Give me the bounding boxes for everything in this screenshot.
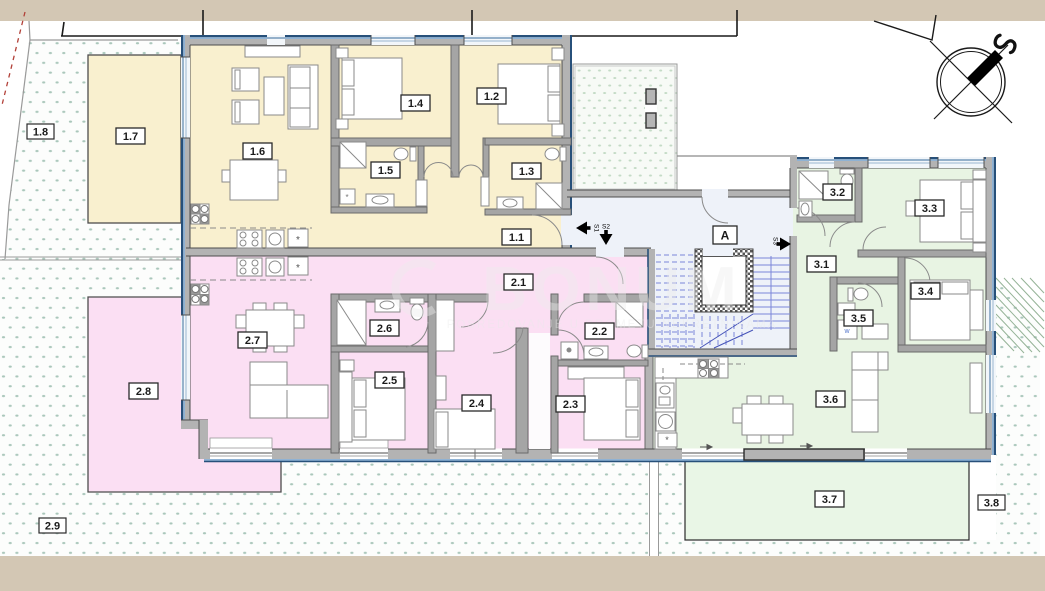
svg-text:*: *: [345, 193, 348, 202]
svg-text:*: *: [296, 235, 300, 246]
svg-text:S2: S2: [602, 224, 610, 231]
svg-text:*: *: [296, 263, 300, 274]
svg-text:3.4: 3.4: [918, 286, 934, 298]
svg-text:1.1: 1.1: [509, 232, 524, 244]
svg-text:3.8: 3.8: [984, 498, 999, 510]
svg-text:1.2: 1.2: [484, 91, 499, 103]
svg-text:3.1: 3.1: [814, 259, 829, 271]
svg-text:3.5: 3.5: [851, 313, 866, 325]
svg-text:2.6: 2.6: [377, 323, 392, 335]
svg-text:2.3: 2.3: [563, 399, 578, 411]
svg-text:1.8: 1.8: [33, 127, 48, 139]
svg-text:1.5: 1.5: [378, 165, 393, 177]
svg-text:2.8: 2.8: [136, 386, 151, 398]
svg-text:1.6: 1.6: [250, 146, 265, 158]
svg-text:A: A: [721, 229, 730, 243]
svg-text:3.7: 3.7: [822, 494, 837, 506]
svg-text:2.1: 2.1: [511, 277, 526, 289]
svg-text:S1: S1: [593, 224, 600, 232]
svg-text:1.4: 1.4: [408, 98, 424, 110]
svg-text:*: *: [665, 435, 669, 445]
svg-text:3.2: 3.2: [830, 187, 845, 199]
svg-text:w: w: [843, 328, 850, 335]
svg-text:2.7: 2.7: [245, 335, 260, 347]
svg-text:2.4: 2.4: [469, 398, 485, 410]
svg-text:S3: S3: [772, 237, 779, 245]
svg-text:2.2: 2.2: [592, 326, 607, 338]
svg-text:1.7: 1.7: [123, 131, 138, 143]
svg-text:3.3: 3.3: [922, 203, 937, 215]
svg-text:1.3: 1.3: [519, 166, 534, 178]
svg-text:3.6: 3.6: [823, 394, 838, 406]
svg-text:2.9: 2.9: [45, 521, 60, 533]
svg-text:2.5: 2.5: [382, 375, 397, 387]
